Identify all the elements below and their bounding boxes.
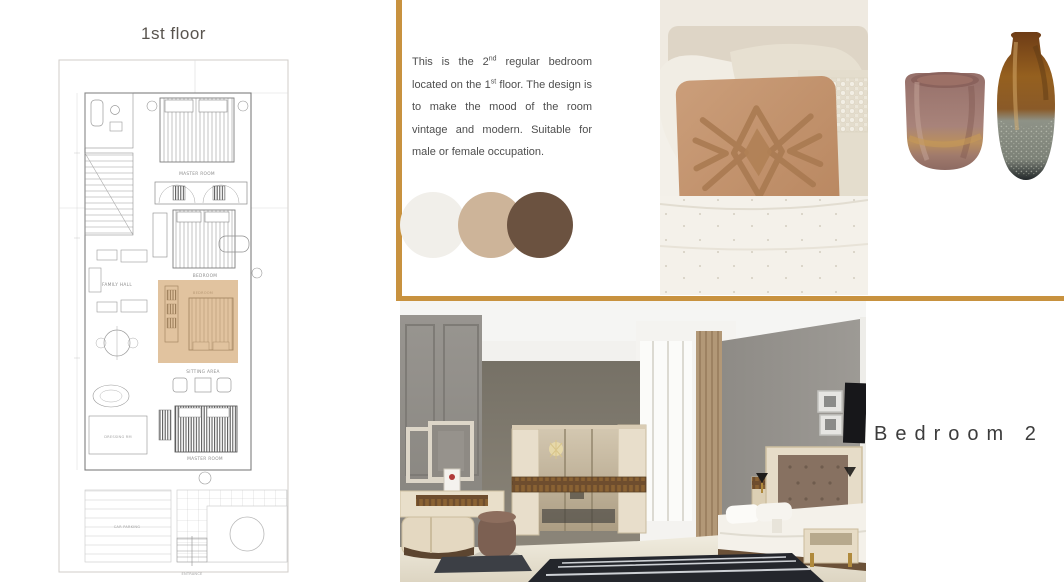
plan-label-master-room-top: MASTER ROOM [179,171,215,177]
floor-plan: MASTER ROOM BEDROOM FAMILY HALL [55,58,292,578]
floor-plan-drawing: MASTER ROOM BEDROOM FAMILY HALL [55,58,292,578]
plan-label-family-hall: FAMILY HALL [102,282,132,288]
palette-swatch-brown [507,192,573,258]
bedroom-photo [400,301,866,582]
plan-label-entrance: ENTRANCE [181,572,203,576]
wardrobe [512,425,646,535]
plan-label-bedroom-top: BEDROOM [193,273,218,279]
vertical-gold-divider [396,0,402,301]
plan-label-sitting-area: SITTING AREA [186,369,220,375]
plan-label-car-parking: CAR PARKING [114,525,141,529]
palette-swatch-offwhite [400,192,466,258]
vases-photo [875,20,1064,200]
bedroom-2-label: Bedroom 2 [874,423,1064,446]
moodboard-slide: 1st floor [0,0,1064,582]
pillow-photo [660,0,868,295]
floor-plan-title: 1st floor [55,24,292,44]
plan-label-master-room-bottom: MASTER ROOM [187,456,223,462]
plan-label-dressing-room: DRESSING RM [104,435,132,439]
room-description: This is the 2nd regular bedroom located … [412,51,592,164]
plan-room-highlight [158,280,238,363]
